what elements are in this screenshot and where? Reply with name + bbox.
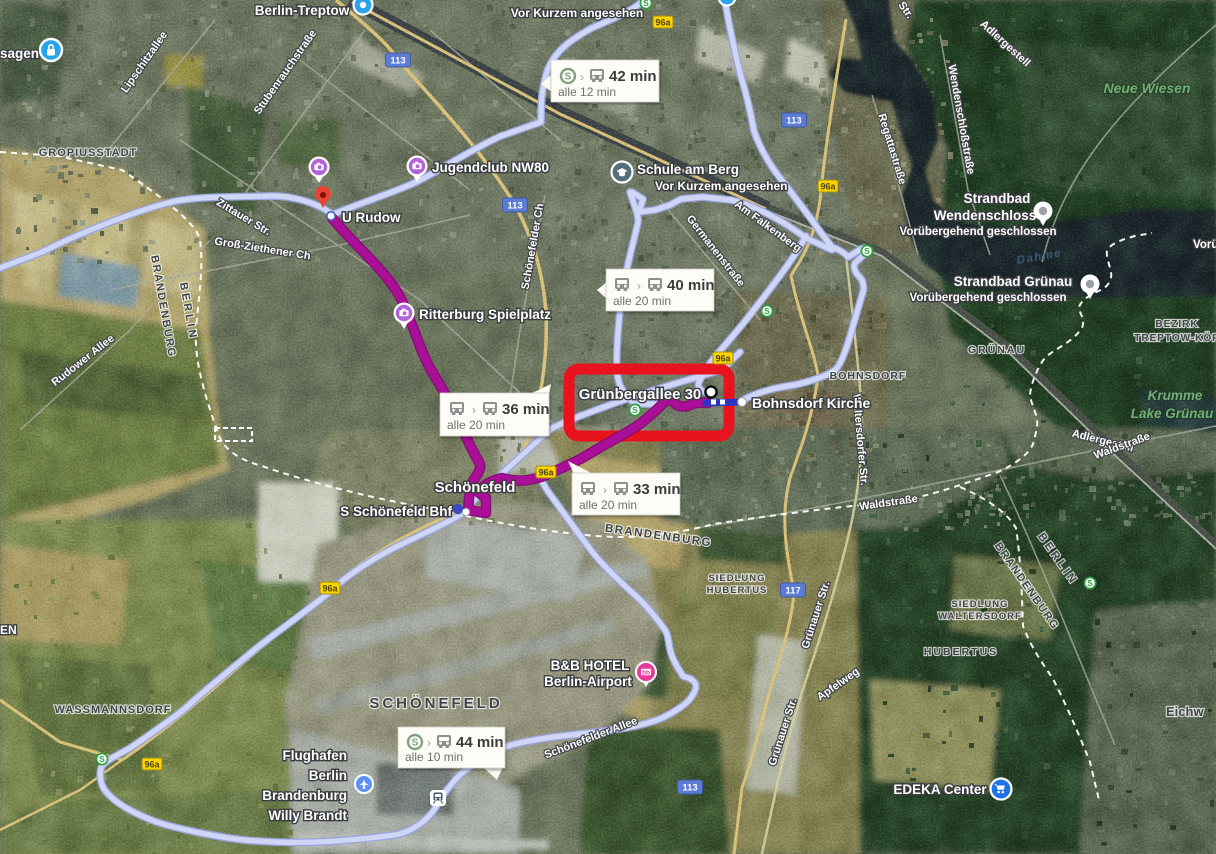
svg-text:Vorübergehend geschlossen: Vorübergehend geschlossen bbox=[900, 226, 1057, 238]
svg-text:Vor Kurzem angesehen: Vor Kurzem angesehen bbox=[655, 179, 787, 193]
svg-text:sagen: sagen bbox=[0, 46, 39, 61]
svg-text:Flughafen: Flughafen bbox=[283, 748, 348, 763]
svg-text:WASSMANNSDORF: WASSMANNSDORF bbox=[55, 704, 172, 716]
svg-text:36 min: 36 min bbox=[502, 401, 550, 418]
svg-text:Vor Kurzem angesehen: Vor Kurzem angesehen bbox=[511, 6, 643, 20]
svg-text:44 min: 44 min bbox=[456, 734, 504, 751]
svg-text:Ritterburg Spielplatz: Ritterburg Spielplatz bbox=[419, 307, 551, 322]
svg-text:Vorübergehend geschlossen: Vorübergehend geschlossen bbox=[910, 292, 1067, 304]
svg-text:WALTERSDORF: WALTERSDORF bbox=[938, 611, 1022, 622]
svg-text:BOHNSDORF: BOHNSDORF bbox=[830, 370, 907, 382]
svg-text:›: › bbox=[472, 403, 476, 417]
svg-text:Willy Brandt: Willy Brandt bbox=[268, 808, 347, 823]
svg-text:›: › bbox=[580, 70, 584, 84]
svg-text:alle 12 min: alle 12 min bbox=[558, 85, 616, 99]
svg-text:Schönefeld: Schönefeld bbox=[435, 479, 516, 496]
svg-text:Lake Grünau: Lake Grünau bbox=[1131, 406, 1214, 421]
svg-text:EDEKA Center: EDEKA Center bbox=[893, 782, 987, 797]
svg-text:GRÜNAU: GRÜNAU bbox=[968, 343, 1026, 356]
svg-text:Wendenschloss: Wendenschloss bbox=[934, 208, 1037, 223]
svg-text:GROPIUSSTADT: GROPIUSSTADT bbox=[39, 147, 138, 159]
svg-text:Strandbad Grünau: Strandbad Grünau bbox=[954, 274, 1073, 289]
svg-text:›: › bbox=[637, 279, 641, 293]
svg-text:U Rudow: U Rudow bbox=[342, 210, 401, 225]
svg-text:alle 20 min: alle 20 min bbox=[579, 498, 637, 512]
svg-text:HUBERTUS: HUBERTUS bbox=[924, 646, 998, 658]
svg-text:Eichw: Eichw bbox=[1166, 704, 1204, 719]
svg-text:Berlin-Treptow: Berlin-Treptow bbox=[255, 3, 350, 18]
svg-text:BEZIRK: BEZIRK bbox=[1155, 319, 1198, 330]
svg-text:EN: EN bbox=[0, 623, 17, 637]
svg-text:HUBERTUS: HUBERTUS bbox=[707, 585, 768, 596]
svg-text:Grünbergallee 30: Grünbergallee 30 bbox=[579, 386, 702, 403]
svg-text:›: › bbox=[427, 736, 431, 750]
svg-text:40 min: 40 min bbox=[667, 277, 715, 294]
svg-text:Bohnsdorf Kirche: Bohnsdorf Kirche bbox=[752, 395, 870, 411]
svg-text:alle 10 min: alle 10 min bbox=[405, 750, 463, 764]
svg-text:B&B HOTEL: B&B HOTEL bbox=[551, 658, 630, 673]
svg-text:bb: bb bbox=[642, 669, 650, 676]
svg-text:Berlin-Airport: Berlin-Airport bbox=[544, 674, 632, 689]
svg-text:Krumme: Krumme bbox=[1148, 388, 1203, 403]
svg-text:SIEDLUNG: SIEDLUNG bbox=[708, 573, 765, 584]
svg-text:Vorü: Vorü bbox=[1193, 239, 1216, 251]
svg-text:SIEDLUNG: SIEDLUNG bbox=[951, 599, 1008, 610]
svg-text:Brandenburg: Brandenburg bbox=[262, 788, 347, 803]
svg-text:alle 20 min: alle 20 min bbox=[447, 418, 505, 432]
svg-text:SCHÖNEFELD: SCHÖNEFELD bbox=[369, 695, 502, 712]
svg-text:Berlin: Berlin bbox=[309, 768, 347, 783]
svg-text:Strandbad: Strandbad bbox=[964, 191, 1031, 206]
svg-text:TREPTOW-KÖPEN: TREPTOW-KÖPEN bbox=[1134, 331, 1216, 344]
svg-text:42 min: 42 min bbox=[609, 68, 657, 85]
svg-text:33 min: 33 min bbox=[633, 481, 681, 498]
svg-text:Schule am Berg: Schule am Berg bbox=[637, 162, 739, 177]
svg-text:Jugendclub NW80: Jugendclub NW80 bbox=[432, 160, 549, 175]
svg-text:Neue Wiesen: Neue Wiesen bbox=[1103, 80, 1190, 96]
svg-text:S Schönefeld Bhf: S Schönefeld Bhf bbox=[340, 504, 452, 519]
svg-text:alle 20 min: alle 20 min bbox=[613, 294, 671, 308]
svg-text:›: › bbox=[603, 483, 607, 497]
